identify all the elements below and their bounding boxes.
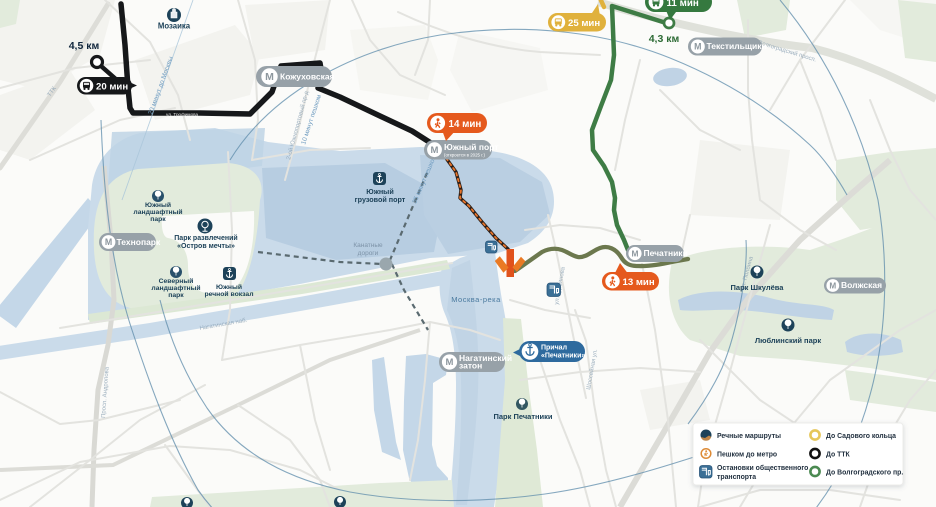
svg-text:ул. Трофимова: ул. Трофимова [166,112,199,117]
svg-text:затон: затон [459,361,482,371]
svg-text:транспорта: транспорта [717,474,756,481]
svg-text:М: М [105,237,112,247]
svg-text:Южный: Южный [216,283,242,291]
svg-text:ландшафтный: ландшафтный [133,208,182,216]
svg-text:Волжская: Волжская [841,280,882,290]
svg-text:20 мин: 20 мин [96,81,128,92]
svg-text:11 мин: 11 мин [667,0,699,9]
svg-text:До Волгоградского пр.: До Волгоградского пр. [826,470,903,477]
svg-text:М: М [431,145,439,156]
svg-text:М: М [829,281,836,290]
svg-text:М: М [446,357,454,368]
svg-text:Остановки общественного: Остановки общественного [717,464,808,472]
svg-text:М: М [265,71,274,83]
svg-text:ландшафтный: ландшафтный [151,284,200,292]
svg-text:Южный порт: Южный порт [444,142,498,152]
svg-text:4,5 км: 4,5 км [69,40,100,52]
svg-text:14 мин: 14 мин [449,119,482,130]
svg-text:Речные маршруты: Речные маршруты [717,433,781,440]
svg-text:Пешком до метро: Пешком до метро [717,452,777,459]
svg-text:Парк развлечений: Парк развлечений [174,234,237,242]
svg-text:25 мин: 25 мин [568,18,600,29]
svg-text:До ТТК: До ТТК [826,452,851,459]
svg-text:Южный: Южный [145,201,171,209]
svg-text:Москва-река: Москва-река [451,295,501,304]
svg-text:М: М [632,248,639,258]
svg-text:дороги: дороги [358,250,379,257]
svg-text:Парк Печатники: Парк Печатники [493,412,552,421]
svg-text:Парк Шкулёва: Парк Шкулёва [731,283,785,292]
svg-text:Северный: Северный [159,277,194,285]
svg-text:Мозаика: Мозаика [158,22,191,31]
svg-text:«Остров мечты»: «Остров мечты» [177,243,235,250]
svg-text:М: М [694,42,701,52]
svg-text:13 мин: 13 мин [623,277,655,288]
svg-text:До Садового кольца: До Садового кольца [826,433,896,440]
svg-text:речной вокзал: речной вокзал [204,290,253,298]
svg-text:Люблинский парк: Люблинский парк [755,336,821,345]
svg-text:«Печатники»: «Печатники» [541,352,585,359]
svg-text:Канатные: Канатные [353,242,383,249]
svg-text:парк: парк [168,292,184,299]
svg-text:Печатники: Печатники [644,248,688,258]
svg-text:Кожуховская: Кожуховская [280,72,335,82]
svg-text:грузовой порт: грузовой порт [355,195,406,204]
svg-text:Текстильщики: Текстильщики [707,41,767,51]
svg-text:(откроется в 2025 г.): (откроется в 2025 г.) [444,152,485,157]
svg-text:парк: парк [150,216,166,223]
svg-text:4,3 км: 4,3 км [649,33,680,45]
svg-text:Технопарк: Технопарк [117,237,161,247]
svg-text:Причал: Причал [541,345,567,352]
